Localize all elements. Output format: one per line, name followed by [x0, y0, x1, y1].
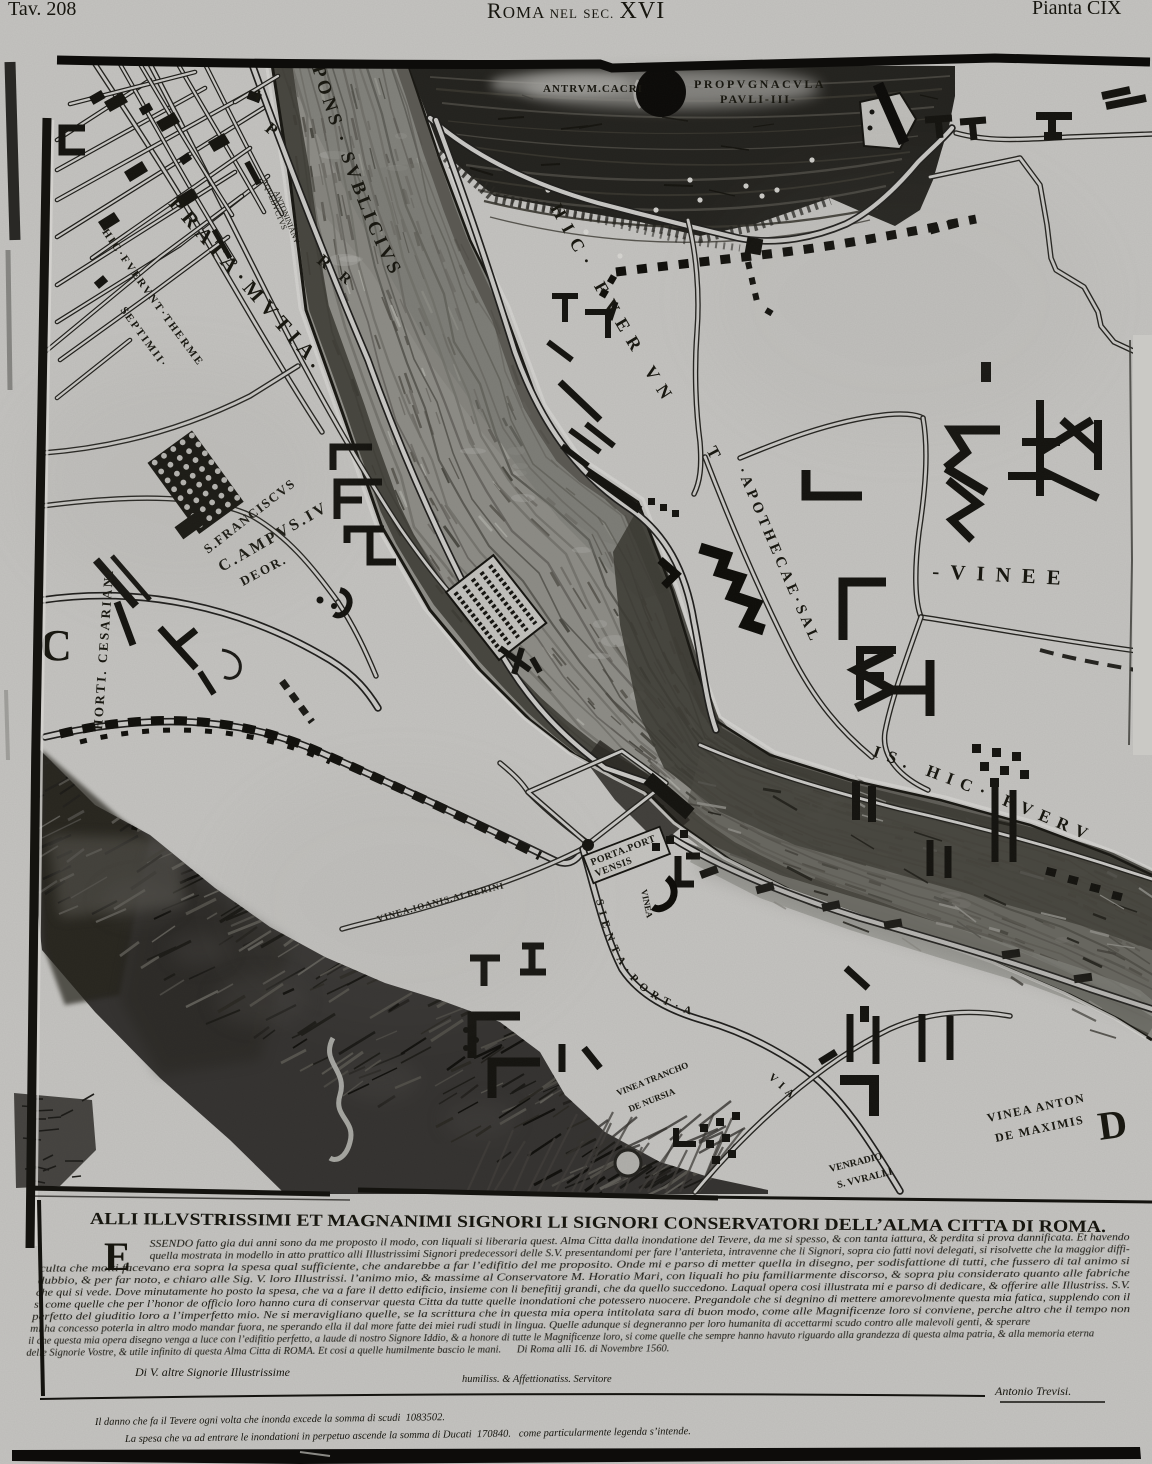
svg-text:Antonio Trevisi.: Antonio Trevisi. [994, 1384, 1071, 1398]
svg-text:humiliss. & Affettionatiss. Se: humiliss. & Affettionatiss. Servitore [462, 1374, 612, 1385]
svg-text:Tav. 208: Tav. 208 [8, 0, 76, 20]
svg-text:Di V. altre Signorie Illustris: Di V. altre Signorie Illustrissime [134, 1365, 291, 1379]
svg-text:Pianta CIX: Pianta CIX [1032, 0, 1122, 19]
